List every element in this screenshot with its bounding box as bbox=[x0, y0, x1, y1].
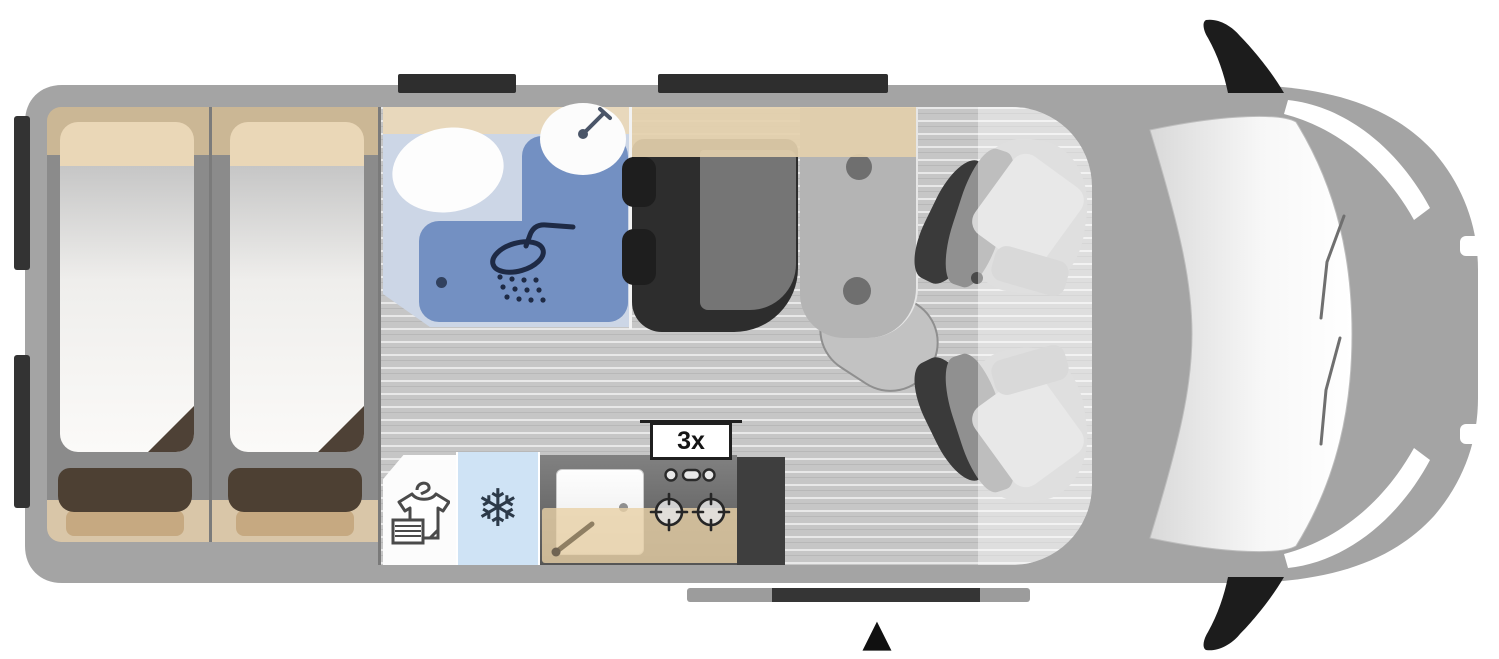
shower-drain bbox=[436, 277, 447, 288]
bed-left-duvet bbox=[58, 468, 192, 512]
rear-window-top bbox=[14, 116, 30, 270]
wardrobe-icon bbox=[390, 478, 450, 556]
bumper-notch-bottom bbox=[1460, 424, 1492, 444]
rear-window-bottom bbox=[14, 355, 30, 508]
bumper-notch-top bbox=[1460, 236, 1492, 256]
bed-right-blanket-fold bbox=[236, 510, 354, 536]
side-mirror-bottom bbox=[1204, 577, 1284, 650]
refrigerator: ❄ bbox=[456, 452, 540, 565]
entrance-arrow-icon: ▲ bbox=[845, 610, 909, 656]
single-bed-left bbox=[60, 122, 194, 452]
bed-right-pillow bbox=[230, 122, 364, 166]
kitchen-tall-cabinet bbox=[737, 457, 785, 565]
table-mount-dot bbox=[846, 154, 872, 180]
dinette-armrest-top bbox=[622, 157, 656, 207]
table-leg-dot bbox=[843, 277, 871, 305]
single-bed-right bbox=[230, 122, 364, 452]
sliding-door-rail-dark bbox=[772, 588, 980, 602]
overhead-cabinet bbox=[632, 107, 916, 157]
burner-count-text: 3x bbox=[677, 427, 705, 456]
bed-left-sheet bbox=[60, 166, 194, 452]
snowflake-icon: ❄ bbox=[476, 479, 520, 539]
two-burner-stove bbox=[642, 458, 746, 542]
roof-vent-right bbox=[658, 74, 888, 93]
shower-icon bbox=[478, 205, 588, 305]
bed-right-duvet bbox=[228, 468, 362, 512]
side-mirror-top bbox=[1204, 20, 1284, 93]
roof-vent-left bbox=[398, 74, 516, 93]
bed-right-sheet bbox=[230, 166, 364, 452]
faucet-icon bbox=[570, 104, 614, 142]
dinette-armrest-bottom bbox=[622, 229, 656, 285]
bed-left-pillow bbox=[60, 122, 194, 166]
burner-count-label: 3x bbox=[650, 422, 732, 460]
kitchen-faucet-icon bbox=[546, 512, 602, 560]
bed-left-blanket-fold bbox=[66, 510, 184, 536]
campervan-floorplan: ❄ 3x bbox=[0, 0, 1499, 659]
cab-floor-overlay bbox=[978, 107, 1092, 565]
bed-divider bbox=[209, 107, 212, 542]
dinette-cushion bbox=[700, 150, 796, 310]
entrance-arrow-glyph: ▲ bbox=[862, 611, 891, 655]
